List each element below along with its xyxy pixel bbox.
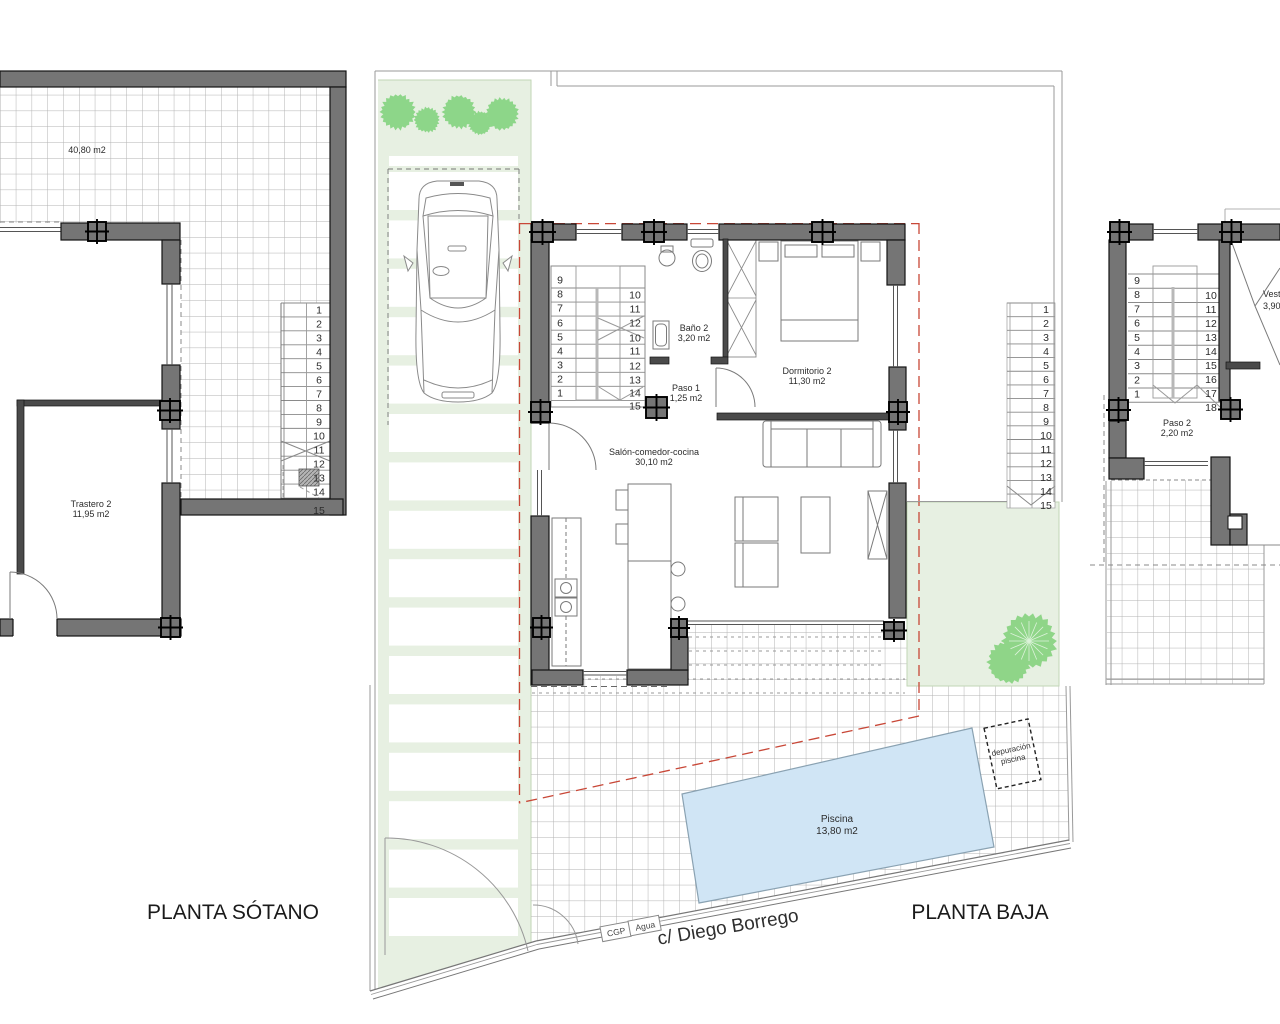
svg-text:9: 9 xyxy=(1134,275,1140,287)
svg-text:2: 2 xyxy=(316,319,322,331)
svg-text:7: 7 xyxy=(557,303,563,315)
svg-text:1: 1 xyxy=(316,305,322,317)
svg-text:11: 11 xyxy=(314,445,325,457)
svg-text:4: 4 xyxy=(1043,346,1049,358)
svg-text:3,20 m2: 3,20 m2 xyxy=(678,333,711,343)
svg-text:12: 12 xyxy=(629,361,641,373)
svg-text:1: 1 xyxy=(1134,389,1140,401)
svg-text:11: 11 xyxy=(630,304,641,316)
svg-text:PLANTA SÓTANO: PLANTA SÓTANO xyxy=(147,901,319,924)
svg-text:6: 6 xyxy=(316,375,322,387)
svg-text:9: 9 xyxy=(1043,416,1049,428)
svg-text:5: 5 xyxy=(316,361,322,373)
svg-text:7: 7 xyxy=(1043,388,1049,400)
svg-text:13: 13 xyxy=(1205,332,1217,344)
svg-text:Paso 2: Paso 2 xyxy=(1163,418,1191,428)
svg-text:8: 8 xyxy=(1043,402,1049,414)
svg-text:Baño 2: Baño 2 xyxy=(680,323,709,333)
svg-text:3: 3 xyxy=(557,360,563,372)
svg-text:9: 9 xyxy=(557,275,563,287)
svg-text:Vestidor: Vestidor xyxy=(1263,289,1280,299)
svg-text:14: 14 xyxy=(1205,346,1217,358)
svg-text:30,10 m2: 30,10 m2 xyxy=(635,457,673,467)
svg-text:2,20 m2: 2,20 m2 xyxy=(1161,428,1194,438)
svg-text:15: 15 xyxy=(1040,500,1052,512)
svg-text:7: 7 xyxy=(1134,303,1140,315)
svg-text:12: 12 xyxy=(313,459,325,471)
svg-text:13,80 m2: 13,80 m2 xyxy=(816,826,858,837)
svg-text:6: 6 xyxy=(1043,374,1049,386)
svg-text:Piscina: Piscina xyxy=(821,814,854,825)
svg-text:4: 4 xyxy=(557,346,563,358)
svg-text:PLANTA BAJA: PLANTA BAJA xyxy=(911,901,1048,924)
svg-text:8: 8 xyxy=(557,289,563,301)
svg-text:13: 13 xyxy=(629,375,641,387)
svg-text:4: 4 xyxy=(316,347,322,359)
svg-text:14: 14 xyxy=(313,487,325,499)
svg-text:15: 15 xyxy=(313,505,325,517)
svg-text:18: 18 xyxy=(1205,402,1217,414)
svg-text:14: 14 xyxy=(629,388,641,400)
svg-text:10: 10 xyxy=(1205,290,1217,302)
svg-text:5: 5 xyxy=(1043,360,1049,372)
svg-text:11,30 m2: 11,30 m2 xyxy=(789,376,826,386)
svg-text:13: 13 xyxy=(1040,472,1052,484)
svg-text:7: 7 xyxy=(316,389,322,401)
svg-text:2: 2 xyxy=(1134,374,1140,386)
svg-text:1: 1 xyxy=(557,388,563,400)
svg-text:14: 14 xyxy=(1040,486,1052,498)
svg-text:6: 6 xyxy=(1134,318,1140,330)
svg-text:Dormitorio 2: Dormitorio 2 xyxy=(782,366,831,376)
svg-text:9: 9 xyxy=(316,417,322,429)
svg-text:13: 13 xyxy=(313,473,325,485)
svg-text:11: 11 xyxy=(1041,444,1052,456)
svg-text:6: 6 xyxy=(557,318,563,330)
svg-text:17: 17 xyxy=(1205,388,1217,400)
svg-text:12: 12 xyxy=(629,318,641,330)
svg-text:4: 4 xyxy=(1134,346,1140,358)
svg-text:2: 2 xyxy=(1043,318,1049,330)
svg-text:Salón-comedor-cocina: Salón-comedor-cocina xyxy=(609,447,699,457)
svg-text:5: 5 xyxy=(557,332,563,344)
svg-text:11,95 m2: 11,95 m2 xyxy=(73,509,110,519)
svg-text:12: 12 xyxy=(1040,458,1052,470)
svg-text:40,80 m2: 40,80 m2 xyxy=(68,145,106,155)
svg-text:10: 10 xyxy=(629,333,641,345)
svg-text:15: 15 xyxy=(1205,360,1217,372)
svg-text:10: 10 xyxy=(1040,430,1052,442)
svg-text:11: 11 xyxy=(630,346,641,358)
svg-text:11: 11 xyxy=(1206,304,1217,316)
svg-text:8: 8 xyxy=(1134,289,1140,301)
svg-text:2: 2 xyxy=(557,374,563,386)
svg-text:3,90 m2: 3,90 m2 xyxy=(1263,301,1280,311)
svg-text:8: 8 xyxy=(316,403,322,415)
svg-text:1,25 m2: 1,25 m2 xyxy=(670,393,703,403)
svg-text:3: 3 xyxy=(1134,360,1140,372)
svg-text:Trastero 2: Trastero 2 xyxy=(71,499,112,509)
svg-text:5: 5 xyxy=(1134,332,1140,344)
svg-text:1: 1 xyxy=(1043,304,1049,316)
svg-text:10: 10 xyxy=(629,290,641,302)
svg-text:10: 10 xyxy=(313,431,325,443)
svg-text:12: 12 xyxy=(1205,318,1217,330)
svg-text:Paso 1: Paso 1 xyxy=(672,383,700,393)
svg-text:16: 16 xyxy=(1205,374,1217,386)
svg-text:3: 3 xyxy=(1043,332,1049,344)
svg-text:3: 3 xyxy=(316,333,322,345)
svg-text:15: 15 xyxy=(629,401,641,413)
